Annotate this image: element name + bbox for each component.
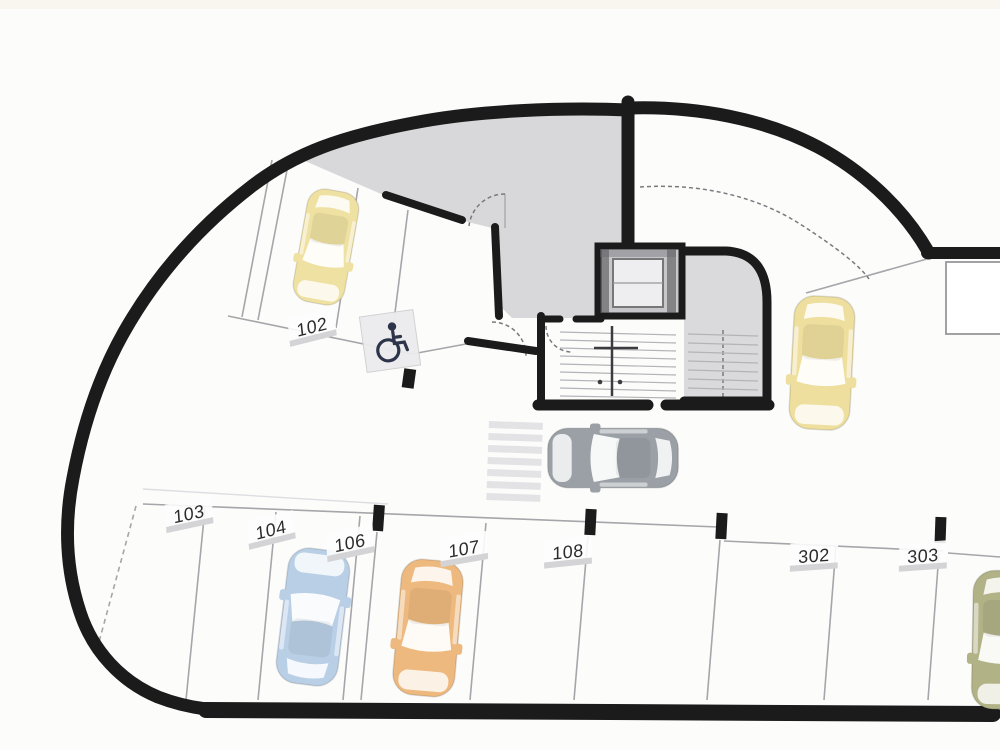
elevator [598,246,682,316]
door-jamb-wall [468,341,536,351]
car-spot-106 [269,545,357,689]
accessible-parking-pad [359,310,420,373]
crosswalk-markings [486,421,543,502]
floor-plan-canvas: 102 103 104 106 107 108 [0,0,1000,750]
wall-stub [584,509,596,536]
spot-label-108: 108 [544,535,592,568]
spot-label-303: 303 [899,540,947,571]
spot-label-103: 103 [165,495,214,533]
outer-wall-top-right [629,108,929,253]
svg-text:108: 108 [552,540,583,563]
car-spot-102 [286,185,365,308]
wall-stub [402,368,417,388]
bottom-wall [206,710,993,714]
parking-floor-plan: 102 103 104 106 107 108 [0,0,1000,750]
car-lane-gray [548,423,679,492]
upper-right-spot-outline [946,262,1000,334]
spot-label-104: 104 [246,510,296,550]
wall-stub [935,517,947,543]
car-spot-107 [386,557,470,699]
stair-handrail [594,326,638,396]
car-right-olive [966,570,1000,710]
vestibule-left-wall [495,227,499,316]
wall-stub [372,505,385,532]
spot-label-107: 107 [440,531,488,568]
wall-stub [715,513,727,540]
stairwell-room [684,251,767,401]
elevator-threshold [600,249,676,257]
spot-label-302: 302 [790,540,838,571]
scan-edge-tint [0,0,1000,9]
elevator-door-track [667,249,676,313]
svg-text:302: 302 [798,545,830,567]
svg-text:303: 303 [907,545,939,567]
spot-label-106: 106 [326,524,375,562]
car-aisle-yellow [783,295,860,432]
spot-label-102: 102 [287,307,337,347]
elevator-door-track [600,249,609,313]
